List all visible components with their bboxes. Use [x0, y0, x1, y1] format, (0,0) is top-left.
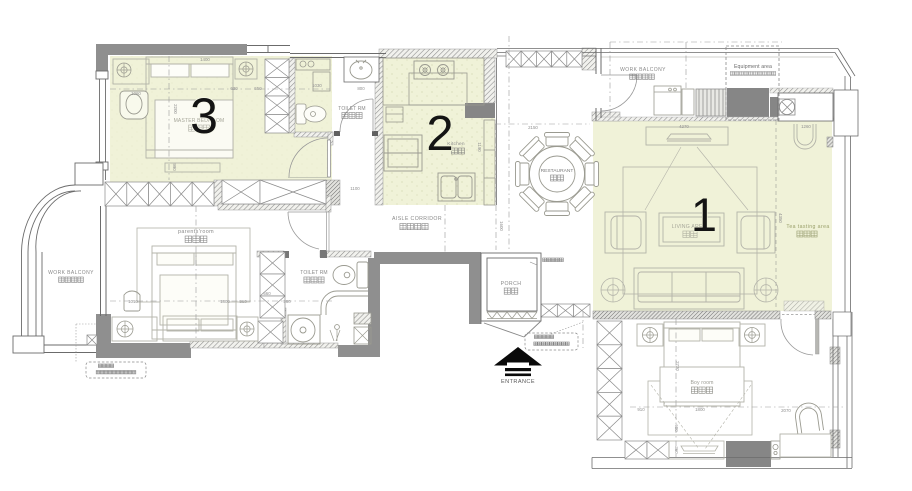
- svg-text:2720: 2720: [675, 361, 680, 371]
- svg-text:1260: 1260: [801, 124, 811, 129]
- svg-text:1030: 1030: [312, 83, 322, 88]
- svg-text:TOILET RM: TOILET RM: [338, 106, 365, 112]
- svg-text:560: 560: [263, 291, 271, 296]
- svg-text:600: 600: [674, 424, 679, 432]
- svg-text:1060: 1060: [131, 91, 141, 96]
- svg-text:630: 630: [230, 86, 238, 91]
- svg-text:1100: 1100: [350, 186, 360, 191]
- svg-text:2150: 2150: [528, 125, 538, 130]
- svg-text:RESTAURANT: RESTAURANT: [541, 168, 574, 174]
- svg-text:360: 360: [674, 446, 679, 454]
- svg-text:1600: 1600: [499, 221, 504, 231]
- svg-text:4270: 4270: [679, 124, 689, 129]
- svg-text:1190: 1190: [477, 142, 482, 152]
- svg-text:990: 990: [172, 163, 177, 171]
- svg-text:2070: 2070: [781, 408, 791, 413]
- svg-text:550: 550: [254, 86, 262, 91]
- svg-text:parents'room: parents'room: [178, 229, 214, 235]
- svg-text:Boy room: Boy room: [691, 380, 714, 386]
- svg-text:1800: 1800: [695, 407, 705, 412]
- svg-text:4350: 4350: [778, 213, 783, 223]
- svg-text:AISLE CORRIDOR: AISLE CORRIDOR: [392, 216, 442, 222]
- svg-text:1: 1: [691, 188, 717, 241]
- svg-text:Tea tasting area: Tea tasting area: [786, 224, 829, 230]
- svg-text:1400: 1400: [200, 57, 210, 62]
- svg-text:1010: 1010: [128, 299, 138, 304]
- svg-text:2: 2: [426, 107, 453, 161]
- svg-text:800: 800: [357, 86, 365, 91]
- svg-text:TOILET RM: TOILET RM: [300, 270, 327, 276]
- svg-text:PORCH: PORCH: [501, 281, 522, 287]
- svg-text:Equipment area: Equipment area: [734, 64, 772, 70]
- svg-text:2200: 2200: [173, 104, 178, 114]
- svg-text:560: 560: [283, 299, 291, 304]
- svg-text:910: 910: [637, 407, 645, 412]
- svg-text:560: 560: [239, 299, 247, 304]
- svg-text:3: 3: [190, 88, 218, 144]
- svg-text:WORK BALCONY: WORK BALCONY: [48, 270, 94, 276]
- svg-text:1800: 1800: [220, 299, 230, 304]
- svg-text:WORK BALCONY: WORK BALCONY: [620, 67, 666, 73]
- svg-text:ENTRANCE: ENTRANCE: [501, 379, 535, 385]
